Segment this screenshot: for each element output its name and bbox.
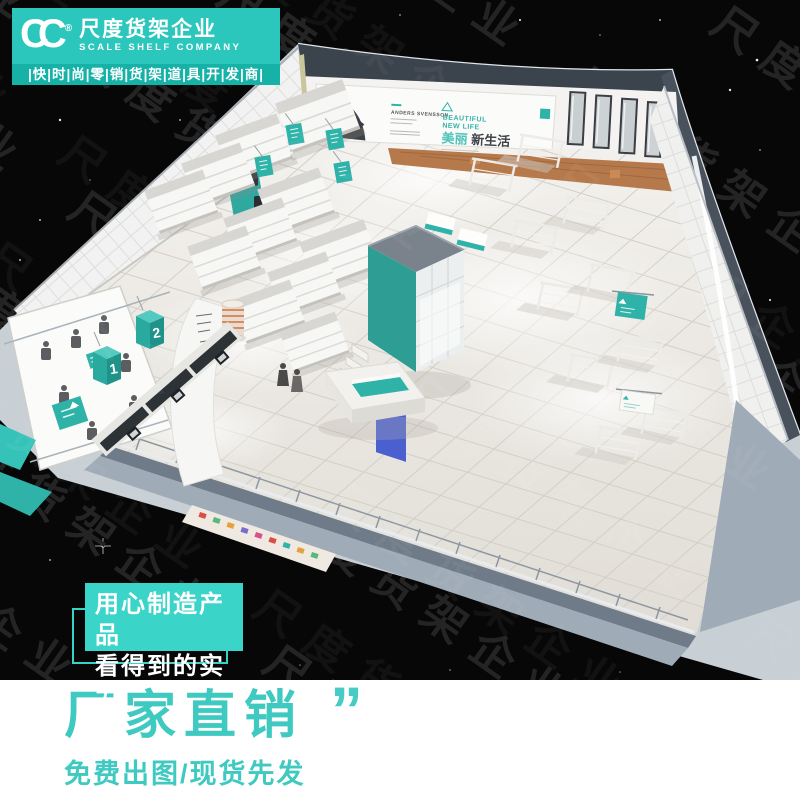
brand-header: CC® 尺度货架企业 SCALE SHELF COMPANY |快|时|尚|零|… bbox=[12, 8, 280, 85]
company-name-en: SCALE SHELF COMPANY bbox=[79, 43, 241, 53]
brand-names: 尺度货架企业 SCALE SHELF COMPANY bbox=[79, 19, 241, 53]
banner-brand-square bbox=[540, 109, 551, 120]
badge-line-2: 看得到的实力 bbox=[95, 651, 243, 713]
registered-mark: ® bbox=[65, 23, 72, 34]
brand-logo-text: CC bbox=[20, 12, 56, 56]
brand-logo: CC® bbox=[20, 14, 79, 54]
badge-line-1: 用心制造产品 bbox=[95, 589, 243, 651]
badge-text-box: 用心制造产品 看得到的实力 bbox=[85, 583, 243, 651]
company-name-cn: 尺度货架企业 bbox=[79, 19, 241, 41]
quote-mark: ” bbox=[330, 692, 363, 728]
promo-image: 尺度货架企业 尺度货架企业 尺度货架企业 尺度货架企业 尺度货架企业 尺度货架企… bbox=[0, 0, 800, 800]
brand-main-block: CC® 尺度货架企业 SCALE SHELF COMPANY bbox=[12, 8, 280, 64]
footer-subline: 免费出图/现货先发 bbox=[64, 752, 800, 791]
brand-tagline-strip: |快|时|尚|零|销|货|架|道|具|开|发|商| bbox=[12, 64, 280, 85]
